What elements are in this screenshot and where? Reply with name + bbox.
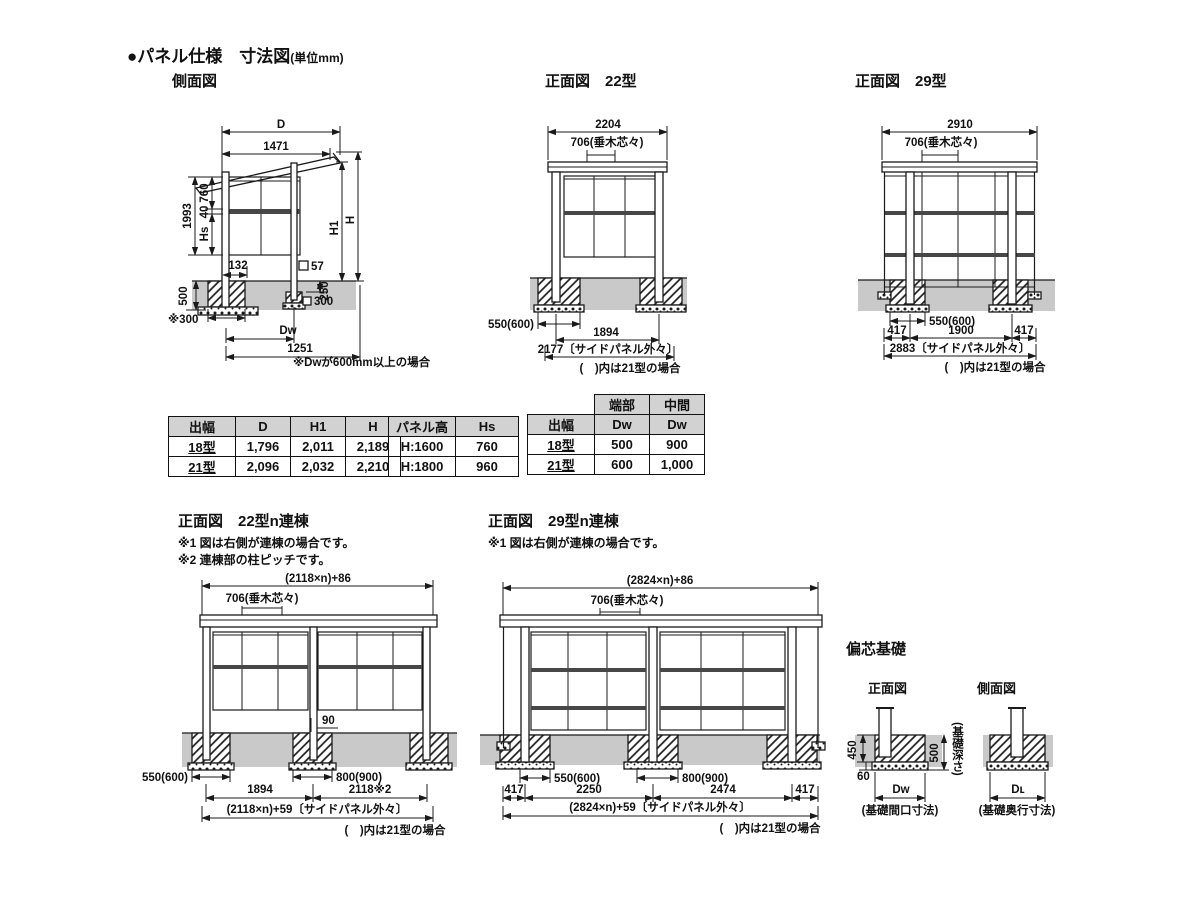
size-th: 出幅	[169, 417, 236, 437]
foundation-side-caption: (基礎奥行寸法)	[979, 803, 1056, 817]
size-cell: 2,032	[291, 457, 346, 477]
dw-cell: 21型	[528, 455, 595, 475]
front22-note: ( )内は21型の場合	[580, 361, 681, 375]
size-cell: 21型	[169, 457, 236, 477]
dw-cell: 500	[595, 435, 650, 455]
foundation-front-diagram: 450 500 (基礎深さ) 60 Dᴡ (基礎間口寸法)	[845, 700, 980, 825]
dim-760: 760	[199, 183, 211, 202]
page-title: ●パネル仕様 寸法図(単位mm)	[127, 42, 344, 67]
dim-40: 40	[199, 206, 211, 219]
dim-h1: H1	[329, 220, 341, 235]
dim-sq300: 300	[314, 296, 333, 308]
dim-2177: 2177〔サイドパネル外々〕	[538, 342, 679, 356]
dim-rafter-ren29: 706(垂木芯々)	[591, 593, 664, 607]
dim-h: H	[345, 216, 357, 224]
dim-rafter29: 706(垂木芯々)	[905, 135, 978, 149]
table-row: 18型 1,796 2,011 2,189	[169, 437, 401, 457]
section-label-front22: 正面図 22型	[545, 70, 637, 91]
page-title-text: ●パネル仕様 寸法図	[127, 47, 290, 66]
foundation-front-label: 正面図	[868, 678, 907, 697]
dim-450: 450	[847, 740, 859, 759]
table-row: 21型 2,096 2,032 2,210	[169, 457, 401, 477]
size-th: D	[236, 417, 291, 437]
dim-1894-ren22: 1894	[247, 784, 273, 796]
table-row: 21型 600 1,000	[528, 455, 705, 475]
dim-dl-foundation: Dʟ	[1011, 784, 1025, 796]
dw-top-th: 中間	[650, 395, 705, 415]
dim-2824n86: (2824×n)+86	[627, 575, 694, 587]
dim-2250: 2250	[576, 784, 602, 796]
section-label-ren22: 正面図 22型n連棟	[178, 510, 309, 531]
dw-top-th: 端部	[595, 395, 650, 415]
dw-corner	[528, 395, 595, 415]
size-cell: 1,796	[236, 437, 291, 457]
dim-500: 500	[178, 286, 190, 305]
front29-ground	[858, 280, 1055, 312]
foundation-side-diagram: Dʟ (基礎奥行寸法)	[975, 700, 1090, 825]
section-label-ren29: 正面図 29型n連棟	[488, 510, 619, 531]
foundation-side-structure	[983, 708, 1053, 770]
front29-diagram: 2910 706(垂木芯々) 550(600) 417 1900 417 288…	[840, 110, 1085, 385]
dim-1251: 1251	[287, 343, 313, 355]
dim-2118x2: 2118※2	[349, 782, 392, 796]
dim-outer-ren29: (2824×n)+59〔サイドパネル外々〕	[569, 800, 751, 814]
dim-417-left-ren29: 417	[504, 784, 523, 796]
dim-note300: ※300	[168, 312, 198, 326]
dw-cell: 600	[595, 455, 650, 475]
dim-dw: Dᴡ	[279, 325, 296, 337]
front22-diagram: 2204 706(垂木芯々) 550(600) 1894 2177〔サイドパネル…	[480, 110, 710, 385]
table-row: H:1600 760	[389, 437, 519, 457]
dim-132: 132	[228, 260, 247, 272]
side-view-dimensions: D 1471 1993 760 40 Hs H1 H 132 57 500 25…	[168, 119, 431, 369]
dim-417-right: 417	[1014, 325, 1033, 337]
section-label-foundation: 偏芯基礎	[846, 638, 906, 659]
side-view-diagram: D 1471 1993 760 40 Hs H1 H 132 57 500 25…	[150, 100, 470, 385]
dim-rafter22: 706(垂木芯々)	[571, 135, 644, 149]
foundation-front-caption: (基礎間口寸法)	[862, 803, 939, 817]
dim-500-foundation: 500	[929, 743, 941, 762]
size-th: H1	[291, 417, 346, 437]
dim-1900: 1900	[948, 325, 974, 337]
side-view-note: ※Dᴡが600mm以上の場合	[293, 355, 431, 369]
panel-cell: H:1600	[389, 437, 456, 457]
dim-d: D	[277, 119, 285, 131]
dw-th: Dᴡ	[650, 415, 705, 435]
table-row: 18型 500 900	[528, 435, 705, 455]
panel-spec-drawing-page: { "colors": {"ground": "#c9c9c9", "table…	[0, 0, 1200, 900]
dim-2118n86: (2118×n)+86	[285, 573, 351, 585]
foundation-side-label: 側面図	[977, 678, 1016, 697]
dim-60: 60	[857, 771, 870, 783]
ren22-note: ( )内は21型の場合	[345, 823, 446, 837]
dw-th: Dᴡ	[595, 415, 650, 435]
section-label-front29: 正面図 29型	[855, 70, 947, 91]
dw-table: 端部 中間 出幅 Dᴡ Dᴡ 18型 500 900 21型 600 1,000	[527, 394, 705, 475]
dw-th: 出幅	[528, 415, 595, 435]
dw-cell: 900	[650, 435, 705, 455]
ren22-note1: ※1 図は右側が連棟の場合です。	[178, 534, 354, 551]
dim-1894-22: 1894	[593, 327, 619, 339]
dim-2474: 2474	[710, 784, 736, 796]
dim-1993: 1993	[182, 203, 194, 229]
dw-cell: 1,000	[650, 455, 705, 475]
ren22-dimensions: (2118×n)+86 706(垂木芯々) 90 550(600) 800(90…	[142, 573, 446, 837]
dim-2883: 2883〔サイドパネル外々〕	[890, 341, 1031, 355]
dim-found2-ren22: 800(900)	[336, 772, 382, 784]
panel-cell: 760	[456, 437, 519, 457]
foundation-side-dimensions: Dʟ (基礎奥行寸法)	[979, 772, 1056, 817]
panel-cell: 960	[456, 457, 519, 477]
ren29-diagram: (2824×n)+86 706(垂木芯々) 550(600) 800(900) …	[475, 570, 850, 855]
page-title-unit: (単位mm)	[290, 51, 343, 65]
ren22-diagram: (2118×n)+86 706(垂木芯々) 90 550(600) 800(90…	[170, 570, 480, 855]
dim-2910: 2910	[947, 119, 973, 131]
ren22-note2: ※2 連棟部の柱ピッチです。	[178, 551, 330, 568]
dw-cell: 18型	[528, 435, 595, 455]
dim-rafter-ren22: 706(垂木芯々)	[226, 591, 299, 605]
dim-found22: 550(600)	[488, 319, 534, 331]
front29-note: ( )内は21型の場合	[945, 360, 1046, 374]
dim-found-ren22: 550(600)	[142, 772, 188, 784]
panel-height-table: パネル高 Hs H:1600 760 H:1800 960	[388, 416, 519, 477]
ren22-ground	[182, 733, 457, 770]
table-row: H:1800 960	[389, 457, 519, 477]
panel-th: Hs	[456, 417, 519, 437]
dim-sq57: 57	[311, 261, 324, 273]
ren29-dimensions: (2824×n)+86 706(垂木芯々) 550(600) 800(900) …	[503, 575, 821, 835]
dim-hs: Hs	[199, 227, 211, 242]
front22-dimensions: 2204 706(垂木芯々) 550(600) 1894 2177〔サイドパネル…	[488, 119, 681, 375]
dim-depth-caption: (基礎深さ)	[951, 722, 965, 776]
section-label-side-view: 側面図	[172, 70, 217, 91]
size-cell: 2,096	[236, 457, 291, 477]
ren29-note1: ※1 図は右側が連棟の場合です。	[488, 534, 664, 551]
dim-outer-ren22: (2118×n)+59〔サイドパネル外々〕	[227, 802, 408, 816]
dim-417-right-ren29: 417	[795, 784, 814, 796]
panel-cell: H:1800	[389, 457, 456, 477]
size-cell: 2,011	[291, 437, 346, 457]
dim-1471: 1471	[263, 141, 289, 153]
panel-th: パネル高	[389, 417, 456, 437]
size-cell: 18型	[169, 437, 236, 457]
dim-417-left: 417	[887, 325, 906, 337]
size-table: 出幅 D H1 H 18型 1,796 2,011 2,189 21型 2,09…	[168, 416, 401, 477]
dim-2204: 2204	[595, 119, 621, 131]
ren29-note: ( )内は21型の場合	[720, 821, 821, 835]
dim-dw-foundation: Dᴡ	[892, 784, 909, 796]
dim-90: 90	[322, 715, 335, 727]
